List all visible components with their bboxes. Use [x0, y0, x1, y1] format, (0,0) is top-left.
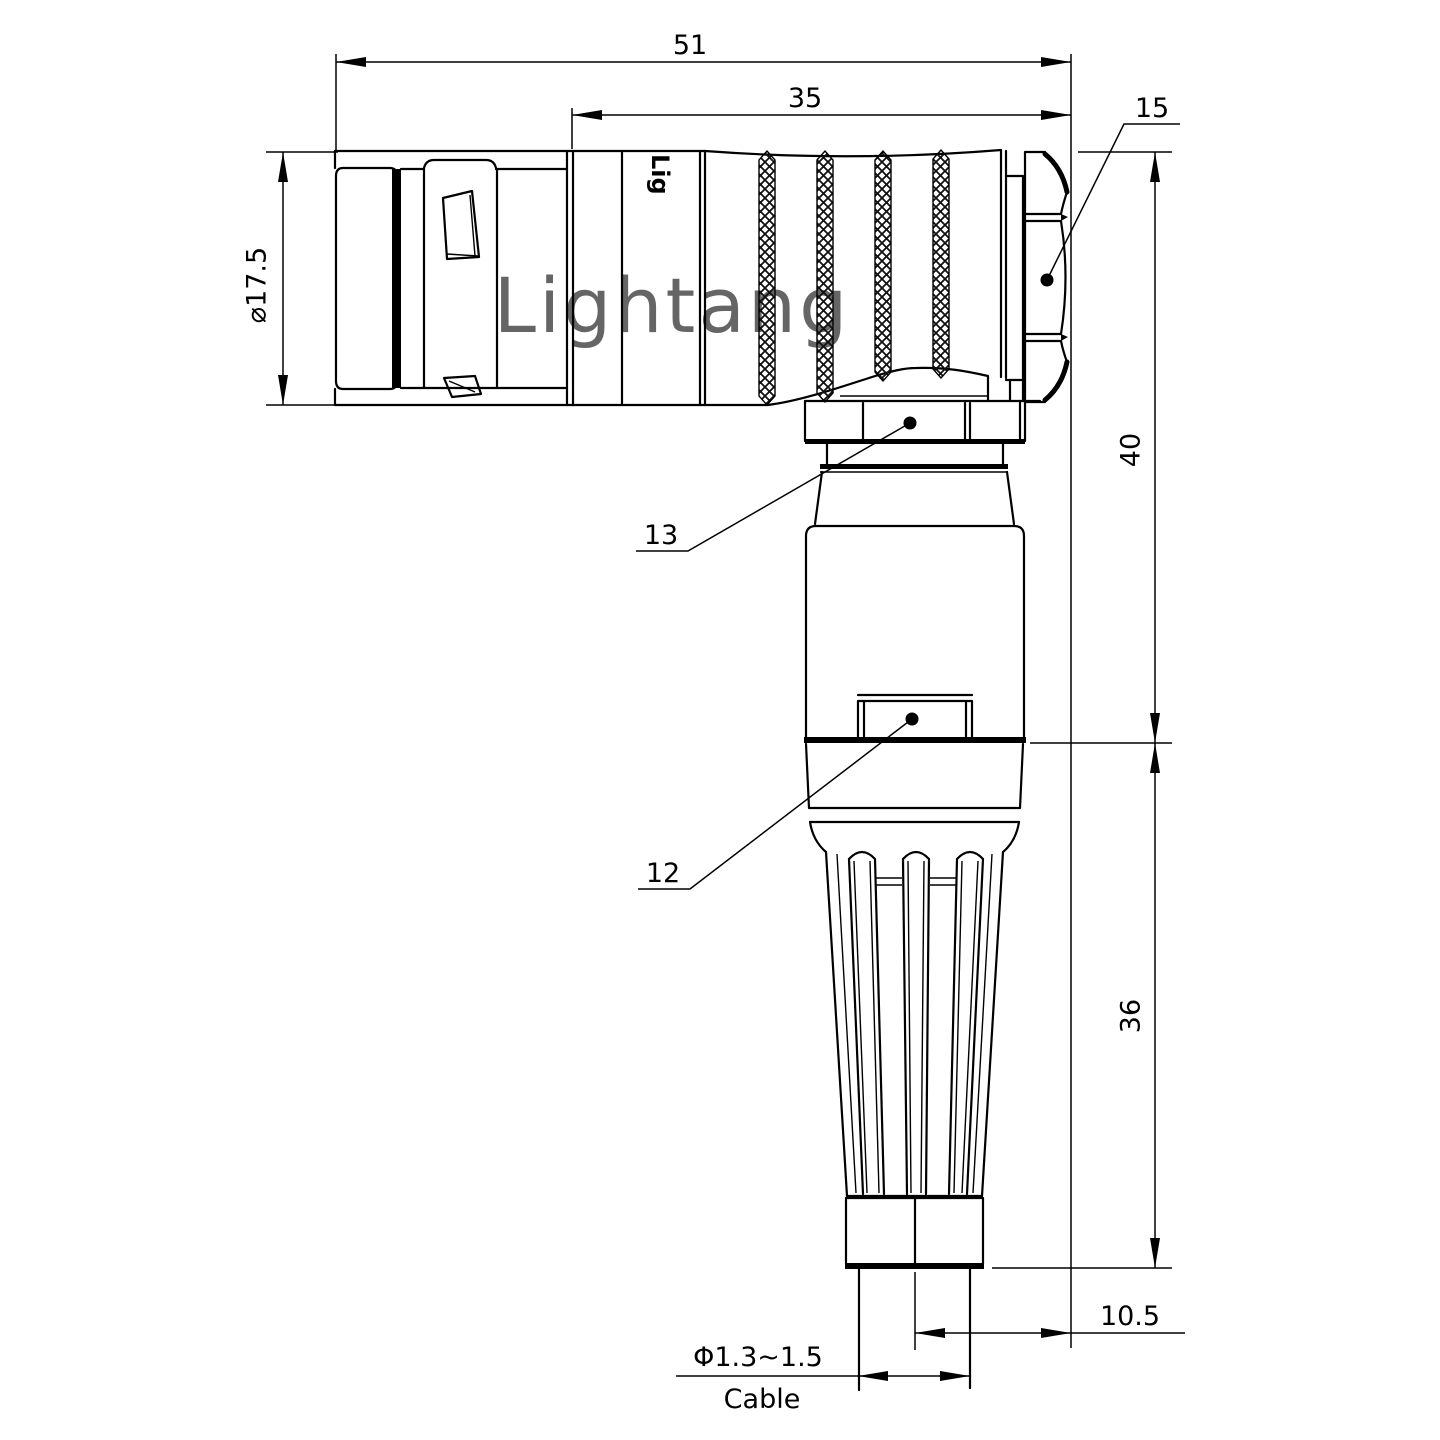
dimension-40: 40 — [1116, 152, 1161, 743]
dimension-cable: Φ1.3~1.5 Cable — [676, 1342, 970, 1415]
coupling-ring — [805, 396, 1040, 524]
svg-text:13: 13 — [644, 520, 678, 551]
dimension-diameter-17-5: ⌀17.5 — [242, 152, 289, 405]
svg-text:12: 12 — [646, 858, 680, 889]
part-labels: 15 13 12 — [636, 93, 1180, 889]
svg-text:36: 36 — [1116, 999, 1147, 1033]
dimension-51: 51 — [336, 30, 1071, 67]
label-15-hex-nut: 15 — [1041, 93, 1181, 287]
cable-label: Cable — [724, 1384, 801, 1415]
technical-drawing: Lightang Lig — [0, 0, 1440, 1440]
svg-text:Φ1.3~1.5: Φ1.3~1.5 — [693, 1342, 823, 1373]
svg-text:51: 51 — [673, 30, 707, 61]
label-13-coupling-ring: 13 — [636, 417, 917, 552]
watermark-text: Lightang — [494, 261, 851, 350]
dimension-36: 36 — [1116, 743, 1161, 1268]
svg-text:⌀17.5: ⌀17.5 — [242, 247, 273, 323]
dimensions: 51 35 ⌀17.5 40 36 — [242, 30, 1186, 1415]
svg-text:40: 40 — [1116, 433, 1147, 467]
strain-relief — [806, 744, 1023, 1269]
barrel-engraving: Lig — [646, 154, 674, 195]
svg-text:15: 15 — [1135, 93, 1169, 124]
svg-text:35: 35 — [788, 83, 822, 114]
drawing-canvas: Lightang Lig — [0, 0, 1440, 1440]
dimension-10-5: 10.5 — [915, 1301, 1185, 1338]
housing-body — [804, 526, 1026, 743]
plug-dark-band — [392, 169, 401, 388]
dimension-35: 35 — [572, 83, 1071, 120]
svg-text:10.5: 10.5 — [1100, 1301, 1160, 1332]
